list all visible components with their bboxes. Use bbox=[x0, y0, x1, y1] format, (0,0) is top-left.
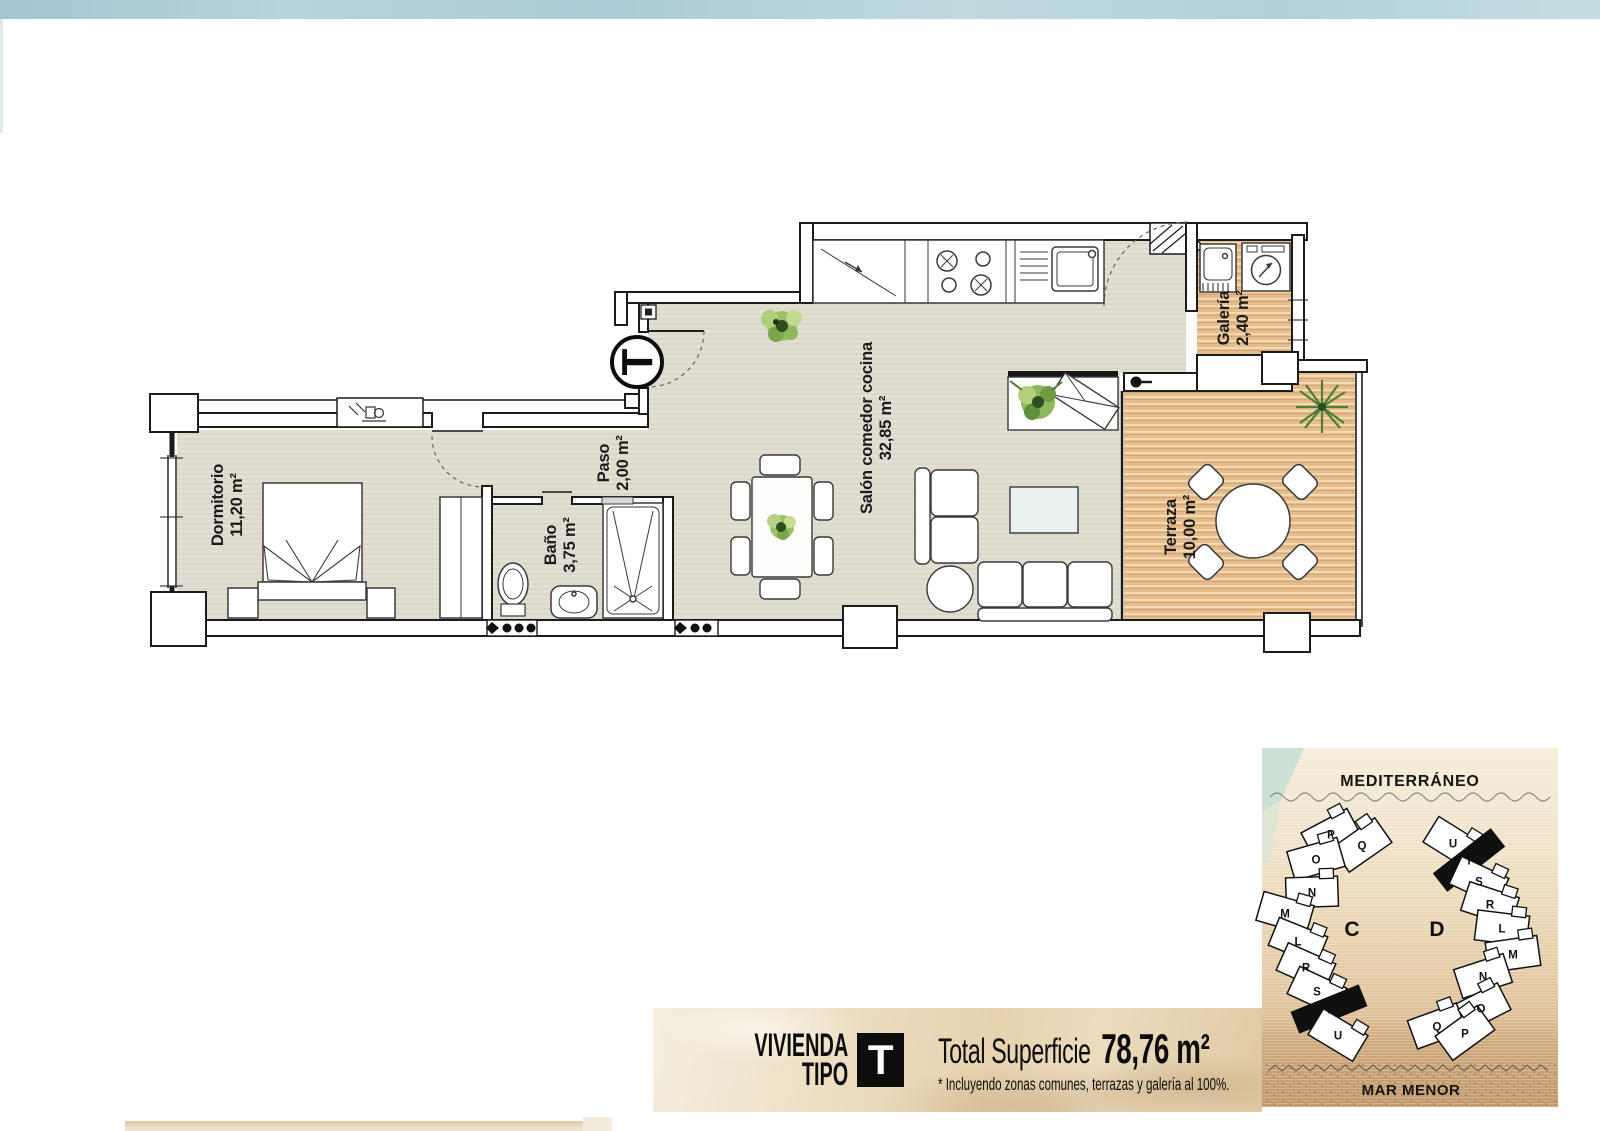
entrance-type-symbol: T bbox=[612, 337, 662, 387]
sea-top-label: MEDITERRÁNEO bbox=[1340, 771, 1479, 790]
type-banner: VIVIENDA TIPO T Total Superficie 78,76 m… bbox=[653, 1008, 1262, 1112]
room-label-galeria: Galería2,40 m² bbox=[1215, 290, 1252, 346]
site-unit-letter-c-n: N bbox=[1308, 888, 1316, 900]
site-unit-letter-c-u: U bbox=[1334, 1031, 1342, 1043]
room-label-dormitorio: Dormitorio11,20 m² bbox=[209, 464, 246, 546]
site-unit-letter-d-r: R bbox=[1486, 900, 1495, 912]
site-unit-letter-d-q: Q bbox=[1433, 1022, 1442, 1034]
site-unit-letter-d-u: U bbox=[1449, 839, 1457, 851]
site-unit-letter-d-o: O bbox=[1477, 1004, 1486, 1016]
terrace-table bbox=[1216, 484, 1290, 558]
site-unit-letter-c-r: R bbox=[1302, 963, 1311, 975]
site-map-inset: MEDITERRÁNEO MAR MENOR PQONMLRSTUUTSRLMN… bbox=[1256, 748, 1558, 1107]
total-surface-value: 78,76 m² bbox=[1101, 1025, 1209, 1073]
nightstand bbox=[228, 588, 258, 618]
total-surface-label: Total Superficie bbox=[938, 1032, 1091, 1072]
galeria-sink-icon bbox=[1200, 244, 1236, 292]
banner-note: * Incluyendo zonas comunes, terrazas y g… bbox=[938, 1074, 1229, 1095]
floor-plan-canvas: T Dormitorio11,20 m²Paso2,00 m²Baño3,75 … bbox=[0, 0, 1600, 1131]
site-unit-letter-d-t: T bbox=[1465, 856, 1472, 868]
galeria-fixtures bbox=[1200, 243, 1290, 292]
site-unit-letter-d-m: M bbox=[1508, 950, 1518, 962]
kitchen bbox=[813, 240, 1104, 303]
grille bbox=[674, 620, 718, 636]
bath-sink-icon bbox=[551, 586, 597, 618]
site-unit-letter-c-m: M bbox=[1280, 909, 1290, 921]
banner-totals: Total Superficie 78,76 m² * Incluyendo z… bbox=[938, 1025, 1229, 1095]
toilet-icon bbox=[498, 563, 528, 616]
pillar bbox=[150, 394, 198, 432]
site-unit-letter-c-p: P bbox=[1327, 830, 1335, 842]
site-unit-letter-c-l: L bbox=[1294, 937, 1301, 949]
site-unit-letter-c-t: T bbox=[1325, 1005, 1332, 1017]
site-unit-letter-c-q: Q bbox=[1358, 841, 1367, 853]
site-unit-letter-d-p: P bbox=[1461, 1029, 1469, 1041]
type-letter-box: T bbox=[857, 1033, 904, 1087]
dressing-niche bbox=[337, 398, 423, 427]
galeria-notch bbox=[1262, 352, 1298, 384]
nightstand bbox=[367, 588, 395, 618]
headboard bbox=[258, 582, 366, 600]
shower-icon bbox=[602, 497, 663, 618]
floor-plan: T Dormitorio11,20 m²Paso2,00 m²Baño3,75 … bbox=[150, 222, 1367, 652]
site-unit-letter-d-s: S bbox=[1475, 877, 1483, 889]
site-unit-letter-c-s: S bbox=[1313, 987, 1321, 999]
pillar bbox=[151, 592, 206, 646]
site-unit-letter-d-l: L bbox=[1498, 924, 1505, 936]
banner-title: VIVIENDA TIPO bbox=[754, 1031, 848, 1090]
washing-machine-icon bbox=[1242, 243, 1290, 291]
site-unit-letter-c-o: O bbox=[1312, 855, 1321, 867]
type-letter: T bbox=[868, 1036, 894, 1084]
building-d-label: D bbox=[1429, 918, 1444, 941]
room-label-bano: Baño3,75 m² bbox=[542, 517, 579, 573]
pillar bbox=[1264, 613, 1310, 652]
banner-title-line2: TIPO bbox=[754, 1060, 848, 1089]
bedroom-furniture bbox=[228, 483, 482, 618]
pouf bbox=[927, 566, 973, 612]
building-c-label: C bbox=[1344, 918, 1359, 941]
entrance-type-letter: T bbox=[613, 348, 662, 375]
site-unit-letter-d-n: N bbox=[1479, 972, 1487, 984]
coffee-table bbox=[1010, 487, 1078, 533]
room-label-terraza: Terraza10,00 m² bbox=[1162, 494, 1199, 559]
grille bbox=[486, 620, 537, 636]
sea-bottom-label: MAR MENOR bbox=[1362, 1082, 1461, 1099]
pillar bbox=[843, 606, 897, 648]
